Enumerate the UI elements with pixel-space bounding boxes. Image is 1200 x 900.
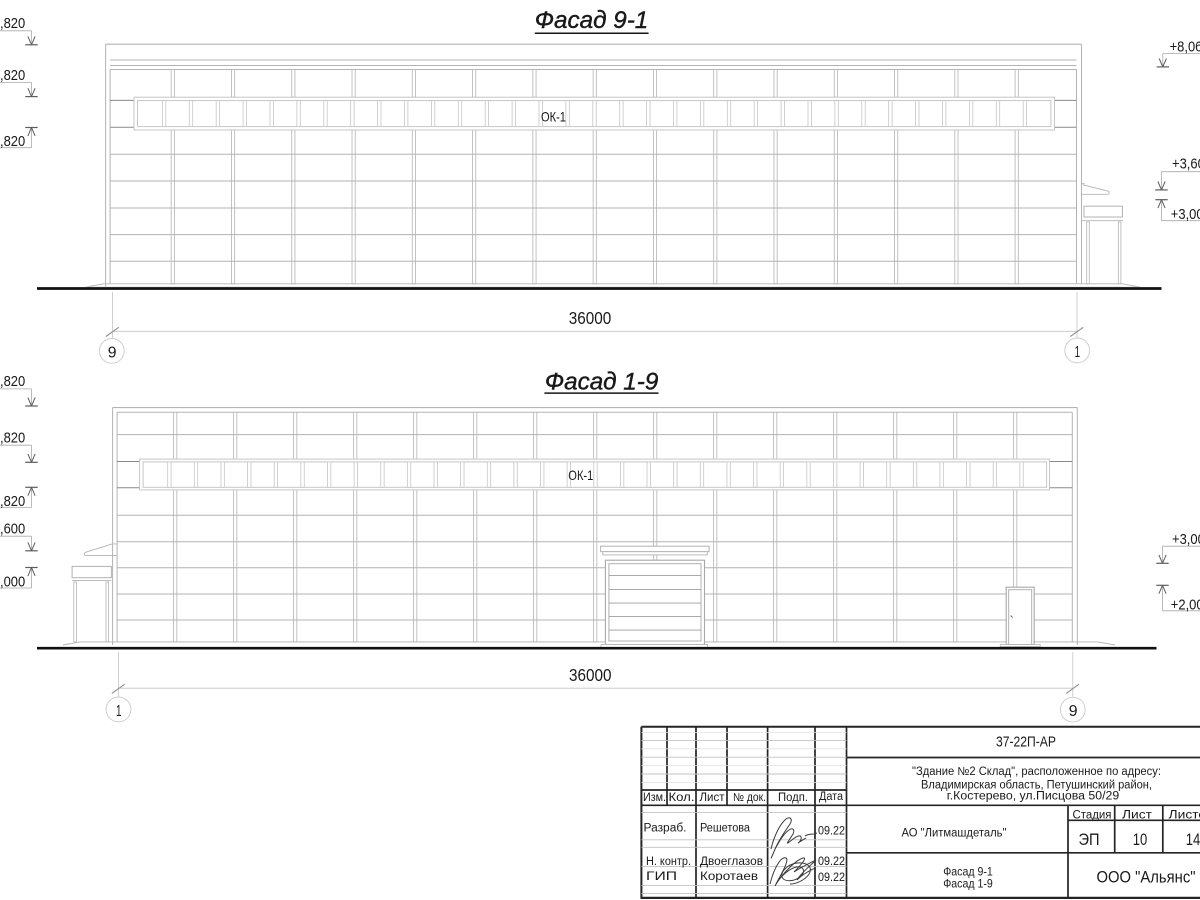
svg-text:+8,060: +8,060	[1170, 40, 1200, 56]
svg-text:09.22: 09.22	[818, 872, 845, 884]
svg-text:+5,820: +5,820	[0, 430, 25, 446]
svg-text:+3,600: +3,600	[0, 522, 25, 538]
svg-text:1: 1	[1075, 344, 1081, 361]
svg-text:Н. контр.: Н. контр.	[646, 856, 691, 868]
svg-text:Листов: Листов	[1169, 810, 1200, 822]
svg-text:+3,000: +3,000	[0, 574, 25, 590]
svg-text:+4,820: +4,820	[0, 134, 25, 150]
svg-text:АО "Литмашдеталь": АО "Литмашдеталь"	[902, 828, 1007, 840]
svg-text:Решетова: Решетова	[700, 823, 751, 835]
svg-text:36000: 36000	[569, 665, 612, 685]
svg-text:36000: 36000	[569, 308, 612, 328]
svg-text:Фасад 9-1: Фасад 9-1	[535, 7, 649, 34]
svg-text:ОК-1: ОК-1	[541, 109, 566, 124]
svg-text:+5,820: +5,820	[0, 68, 25, 84]
svg-text:Лист: Лист	[700, 792, 726, 804]
svg-text:9: 9	[108, 344, 117, 361]
svg-text:9: 9	[1069, 703, 1078, 720]
svg-text:Подп.: Подп.	[778, 792, 808, 804]
svg-text:09.22: 09.22	[818, 826, 845, 838]
svg-text:+4,820: +4,820	[0, 494, 25, 510]
svg-text:Коротаев: Коротаев	[700, 871, 758, 883]
svg-text:ЭП: ЭП	[1079, 831, 1100, 849]
svg-text:Кол.: Кол.	[669, 792, 695, 804]
svg-text:Фасад 1-9: Фасад 1-9	[545, 369, 659, 396]
svg-text:+8,820: +8,820	[0, 16, 25, 32]
svg-text:Изм.: Изм.	[643, 792, 666, 804]
svg-text:г.Костерево, ул.Писцова 50/29: г.Костерево, ул.Писцова 50/29	[947, 791, 1120, 803]
svg-text:Двоеглазов: Двоеглазов	[700, 856, 763, 868]
svg-text:№ док.: № док.	[733, 792, 766, 804]
svg-text:Разраб.: Разраб.	[644, 823, 687, 835]
svg-text:Дата: Дата	[819, 791, 844, 803]
svg-text:+3,000: +3,000	[1171, 207, 1200, 223]
svg-text:ООО "Альянс": ООО "Альянс"	[1097, 868, 1196, 887]
svg-text:+3,600: +3,600	[1172, 157, 1200, 173]
svg-text:+2,000: +2,000	[1171, 597, 1200, 613]
svg-text:09.22: 09.22	[818, 856, 845, 868]
svg-text:ОК-1: ОК-1	[568, 468, 593, 483]
svg-text:"Здание №2 Склад", расположенн: "Здание №2 Склад", расположенное по адре…	[912, 766, 1161, 778]
svg-text:Лист: Лист	[1122, 810, 1153, 822]
svg-text:10: 10	[1133, 831, 1148, 849]
svg-text:+8,820: +8,820	[0, 374, 25, 390]
svg-text:14: 14	[1186, 831, 1200, 849]
svg-text:1: 1	[116, 703, 122, 720]
svg-text:37-22П-АР: 37-22П-АР	[996, 735, 1056, 751]
svg-text:Фасад 1-9: Фасад 1-9	[943, 877, 993, 891]
svg-text:+3,000: +3,000	[1172, 532, 1200, 548]
svg-text:Стадия: Стадия	[1073, 810, 1112, 822]
svg-text:ГИП: ГИП	[646, 871, 677, 883]
